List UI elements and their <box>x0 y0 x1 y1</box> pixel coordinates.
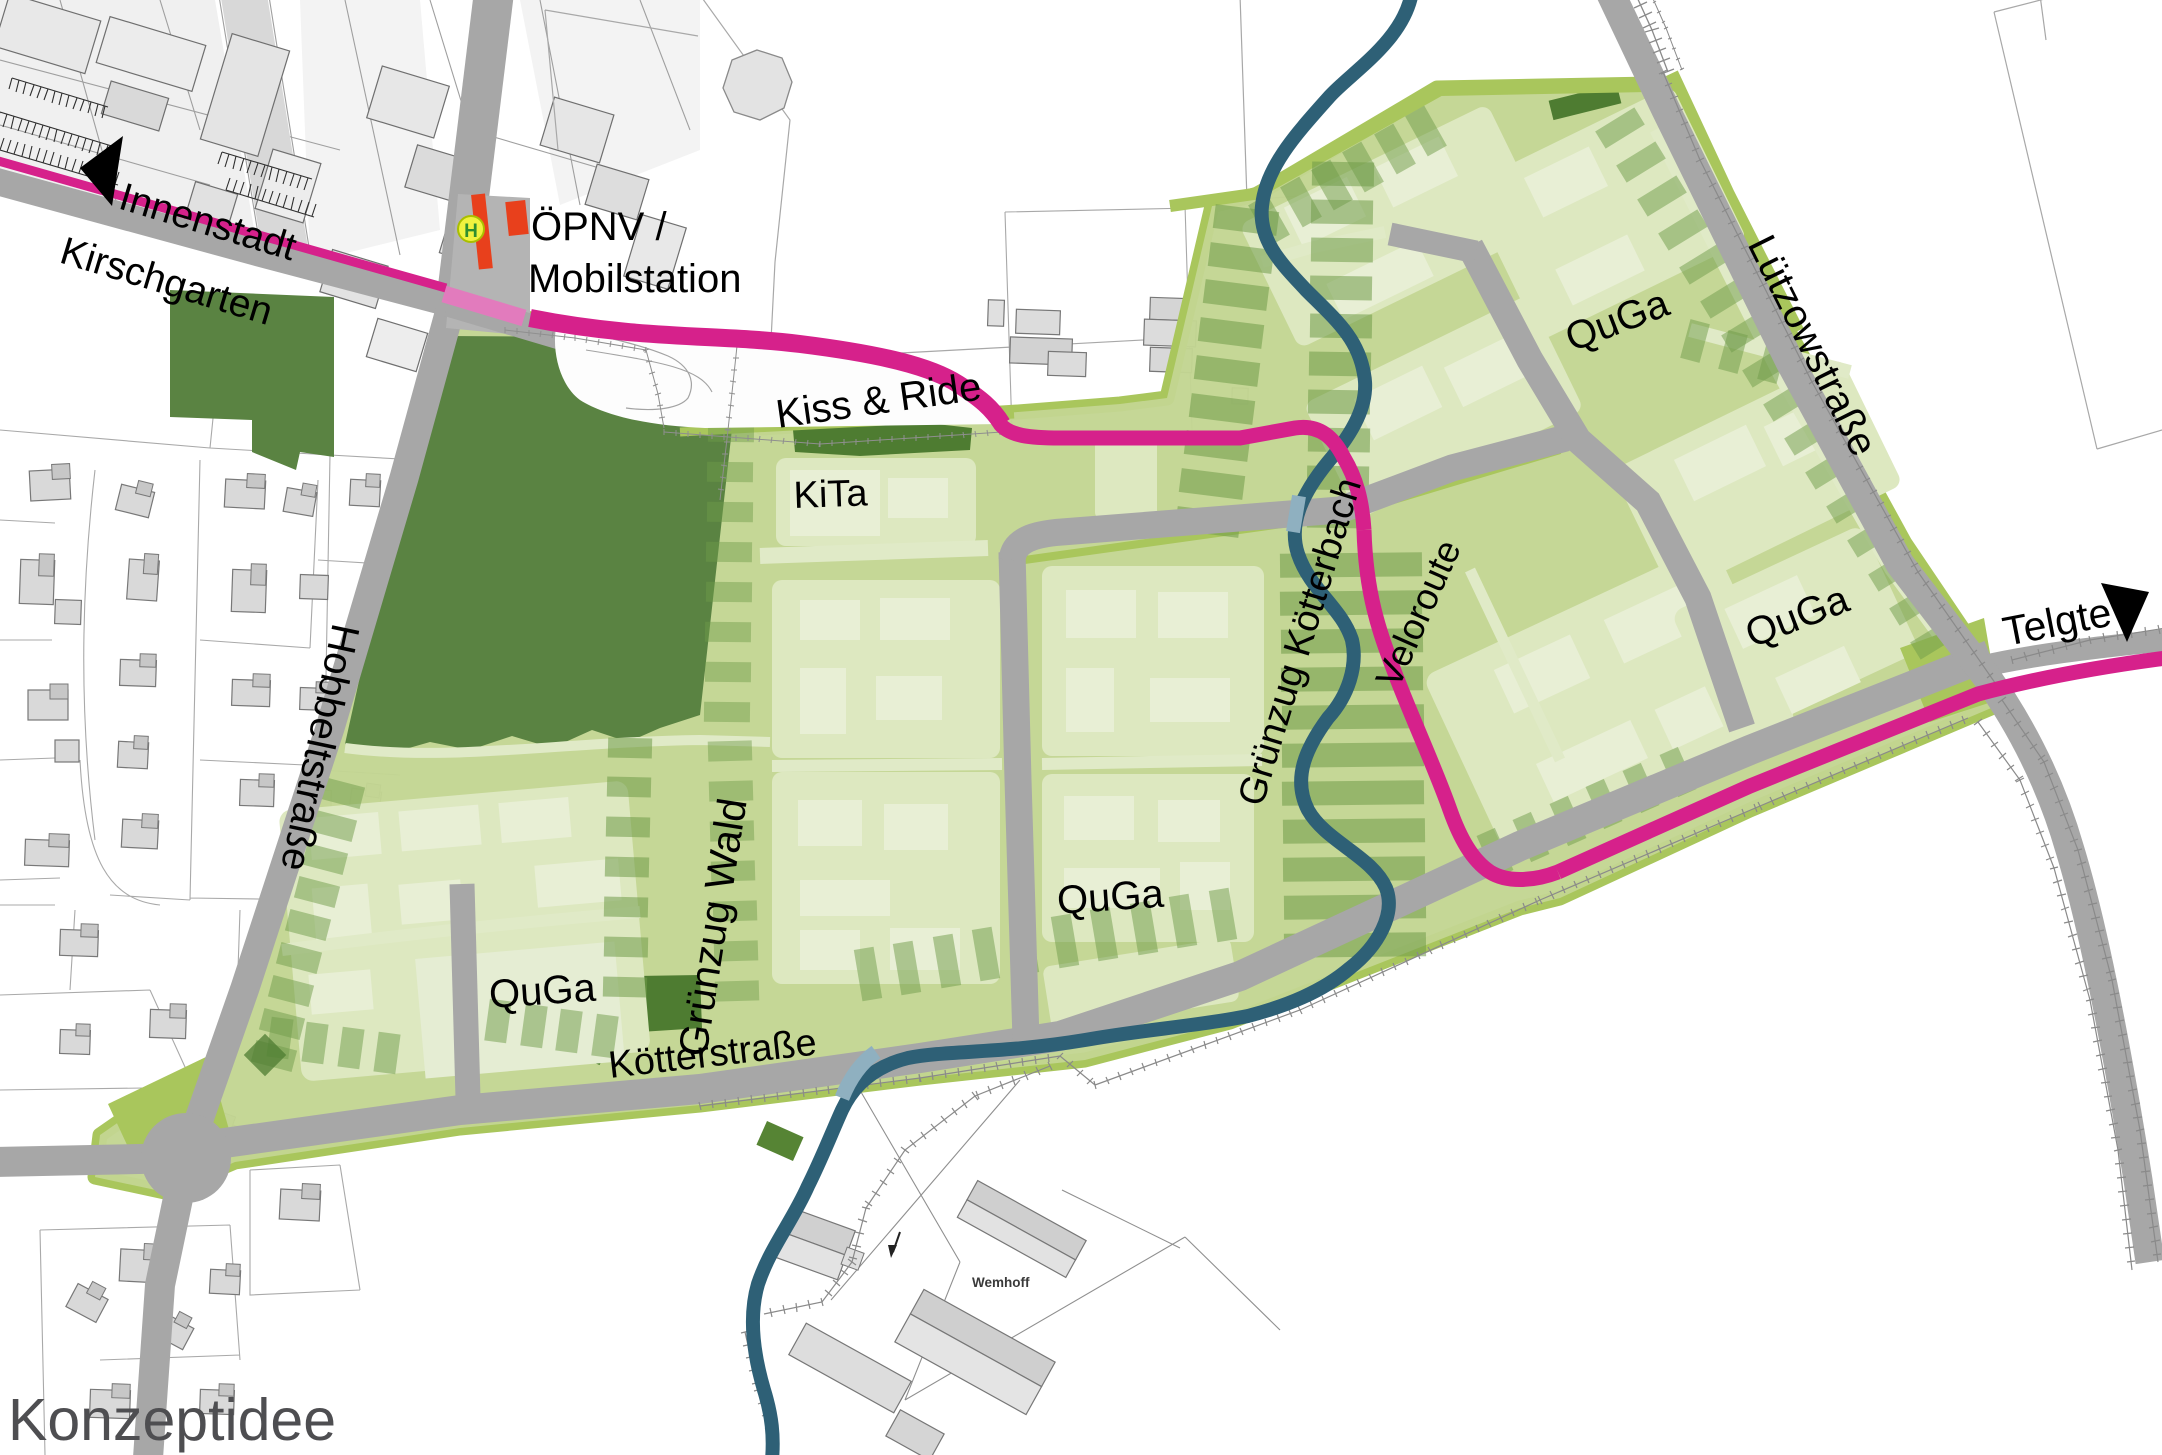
svg-text:QuGa: QuGa <box>488 966 598 1017</box>
svg-text:Konzeptidee: Konzeptidee <box>8 1387 336 1453</box>
svg-text:Wemhoff: Wemhoff <box>972 1275 1030 1290</box>
svg-text:KiTa: KiTa <box>793 472 869 517</box>
svg-text:QuGa: QuGa <box>1056 872 1166 923</box>
svg-text:Mobilstation: Mobilstation <box>528 257 741 301</box>
svg-text:ÖPNV /: ÖPNV / <box>531 205 667 249</box>
svg-text:H: H <box>464 221 478 242</box>
